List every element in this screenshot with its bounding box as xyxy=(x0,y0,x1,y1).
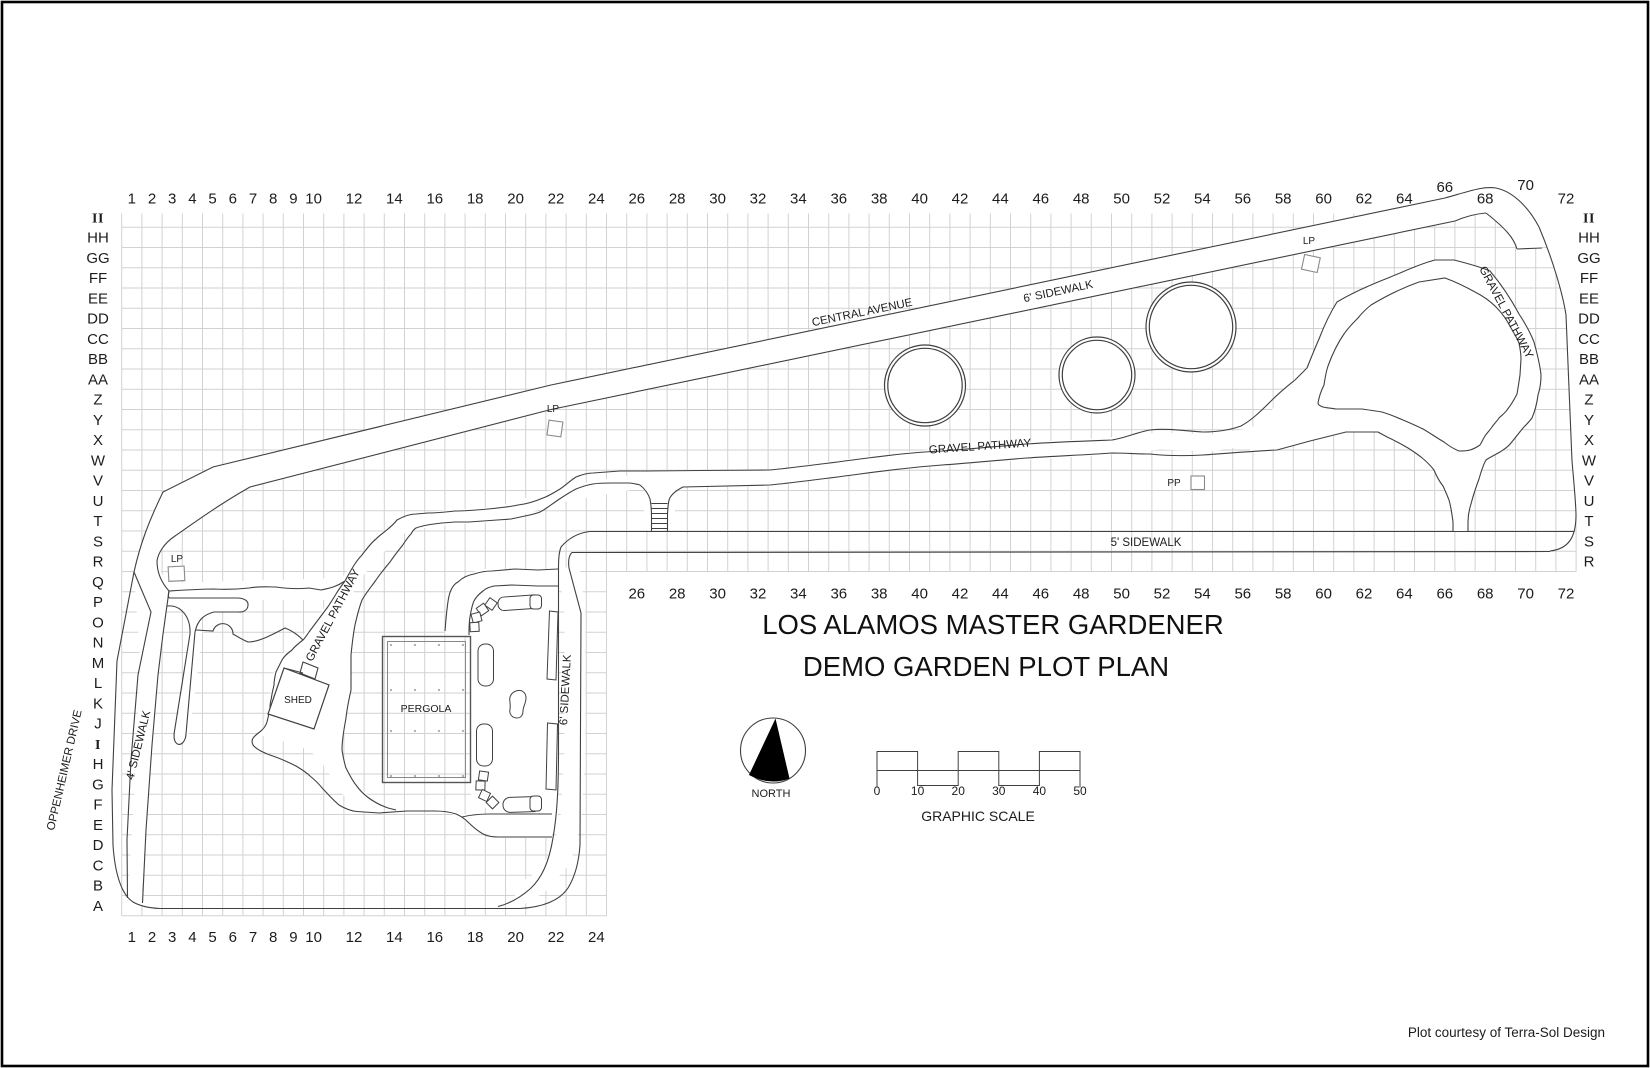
svg-text:12: 12 xyxy=(346,929,363,946)
svg-text:8: 8 xyxy=(269,191,277,208)
svg-text:X: X xyxy=(93,432,103,449)
svg-text:50: 50 xyxy=(1113,586,1130,603)
svg-text:LP: LP xyxy=(547,404,560,415)
svg-text:40: 40 xyxy=(911,191,928,208)
svg-text:18: 18 xyxy=(467,191,484,208)
svg-text:BB: BB xyxy=(1579,351,1599,368)
svg-text:52: 52 xyxy=(1154,191,1171,208)
svg-text:64: 64 xyxy=(1396,586,1413,603)
svg-text:DEMO GARDEN PLOT PLAN: DEMO GARDEN PLOT PLAN xyxy=(803,651,1169,682)
svg-text:36: 36 xyxy=(830,586,847,603)
svg-text:60: 60 xyxy=(1315,586,1332,603)
svg-text:60: 60 xyxy=(1315,191,1332,208)
svg-text:56: 56 xyxy=(1234,586,1251,603)
svg-text:38: 38 xyxy=(871,191,888,208)
svg-text:3: 3 xyxy=(168,929,176,946)
svg-text:Y: Y xyxy=(1584,412,1594,429)
svg-text:V: V xyxy=(93,473,103,490)
svg-text:PERGOLA: PERGOLA xyxy=(401,703,452,715)
svg-text:A: A xyxy=(93,898,103,915)
svg-text:20: 20 xyxy=(952,784,966,798)
svg-text:58: 58 xyxy=(1275,191,1292,208)
svg-text:42: 42 xyxy=(952,586,969,603)
svg-text:P: P xyxy=(93,594,103,611)
svg-text:34: 34 xyxy=(790,586,807,603)
svg-text:1: 1 xyxy=(128,191,136,208)
svg-text:26: 26 xyxy=(628,586,645,603)
svg-text:DD: DD xyxy=(87,311,109,328)
svg-text:32: 32 xyxy=(750,191,767,208)
svg-text:30: 30 xyxy=(709,191,726,208)
svg-text:8: 8 xyxy=(269,929,277,946)
svg-text:44: 44 xyxy=(992,586,1009,603)
svg-text:Q: Q xyxy=(92,574,104,591)
svg-text:T: T xyxy=(1584,513,1593,530)
svg-text:O: O xyxy=(92,614,104,631)
svg-text:22: 22 xyxy=(548,191,565,208)
svg-text:Y: Y xyxy=(93,412,103,429)
svg-text:AA: AA xyxy=(88,371,108,388)
svg-text:30: 30 xyxy=(992,784,1006,798)
svg-text:Plot courtesy of Terra-Sol Des: Plot courtesy of Terra-Sol Design xyxy=(1408,1025,1605,1040)
svg-text:GG: GG xyxy=(1577,250,1600,267)
svg-text:M: M xyxy=(92,655,105,672)
svg-text:64: 64 xyxy=(1396,191,1413,208)
svg-text:16: 16 xyxy=(426,191,443,208)
svg-text:34: 34 xyxy=(790,191,807,208)
svg-text:42: 42 xyxy=(952,191,969,208)
svg-text:70: 70 xyxy=(1517,586,1534,603)
svg-text:GRAPHIC SCALE: GRAPHIC SCALE xyxy=(921,808,1035,824)
svg-text:R: R xyxy=(93,554,104,571)
svg-text:U: U xyxy=(1584,493,1595,510)
svg-text:24: 24 xyxy=(588,929,605,946)
svg-text:W: W xyxy=(1582,452,1597,469)
svg-text:46: 46 xyxy=(1032,586,1049,603)
svg-text:EE: EE xyxy=(1579,290,1599,307)
svg-text:70: 70 xyxy=(1517,177,1534,194)
svg-text:L: L xyxy=(94,675,102,692)
svg-text:26: 26 xyxy=(628,191,645,208)
svg-text:7: 7 xyxy=(249,191,257,208)
svg-text:1: 1 xyxy=(128,929,136,946)
svg-text:2: 2 xyxy=(148,929,156,946)
svg-text:10: 10 xyxy=(305,929,322,946)
svg-text:72: 72 xyxy=(1558,586,1575,603)
svg-text:6: 6 xyxy=(229,191,237,208)
svg-text:I: I xyxy=(95,738,101,753)
svg-text:24: 24 xyxy=(588,191,605,208)
svg-text:7: 7 xyxy=(249,929,257,946)
svg-text:II: II xyxy=(1583,211,1595,226)
svg-text:3: 3 xyxy=(168,191,176,208)
svg-text:EE: EE xyxy=(88,290,108,307)
svg-text:5' SIDEWALK: 5' SIDEWALK xyxy=(1111,537,1182,549)
svg-text:10: 10 xyxy=(305,191,322,208)
svg-text:X: X xyxy=(1584,432,1594,449)
svg-text:HH: HH xyxy=(87,230,109,247)
svg-text:6: 6 xyxy=(229,929,237,946)
svg-text:16: 16 xyxy=(426,929,443,946)
svg-text:72: 72 xyxy=(1558,191,1575,208)
svg-text:PP: PP xyxy=(1167,478,1181,489)
svg-text:R: R xyxy=(1584,554,1595,571)
svg-text:46: 46 xyxy=(1032,191,1049,208)
svg-text:N: N xyxy=(93,635,104,652)
svg-text:H: H xyxy=(93,756,104,773)
svg-text:W: W xyxy=(91,452,106,469)
svg-text:68: 68 xyxy=(1477,586,1494,603)
svg-text:38: 38 xyxy=(871,586,888,603)
svg-text:Z: Z xyxy=(1584,392,1593,409)
svg-text:LOS ALAMOS MASTER GARDENER: LOS ALAMOS MASTER GARDENER xyxy=(762,609,1224,640)
svg-text:50: 50 xyxy=(1073,784,1087,798)
svg-text:Z: Z xyxy=(93,392,102,409)
svg-text:0: 0 xyxy=(874,784,881,798)
svg-text:U: U xyxy=(93,493,104,510)
svg-text:J: J xyxy=(94,716,102,733)
svg-text:CC: CC xyxy=(1578,331,1600,348)
svg-text:S: S xyxy=(93,533,103,550)
svg-text:62: 62 xyxy=(1356,191,1373,208)
svg-text:48: 48 xyxy=(1073,586,1090,603)
svg-text:14: 14 xyxy=(386,191,403,208)
svg-text:T: T xyxy=(93,513,102,530)
svg-text:58: 58 xyxy=(1275,586,1292,603)
svg-text:G: G xyxy=(92,776,104,793)
svg-text:NORTH: NORTH xyxy=(752,788,791,800)
svg-text:HH: HH xyxy=(1578,230,1600,247)
svg-text:66: 66 xyxy=(1436,586,1453,603)
svg-text:AA: AA xyxy=(1579,371,1599,388)
svg-text:GG: GG xyxy=(86,250,109,267)
svg-text:LP: LP xyxy=(1303,236,1316,247)
svg-text:20: 20 xyxy=(507,191,524,208)
svg-text:28: 28 xyxy=(669,191,686,208)
svg-text:4: 4 xyxy=(188,191,196,208)
svg-text:10: 10 xyxy=(911,784,925,798)
svg-text:SHED: SHED xyxy=(284,695,312,706)
svg-text:54: 54 xyxy=(1194,191,1211,208)
svg-text:4: 4 xyxy=(188,929,196,946)
svg-text:40: 40 xyxy=(911,586,928,603)
svg-text:II: II xyxy=(92,211,104,226)
svg-text:9: 9 xyxy=(289,929,297,946)
svg-text:62: 62 xyxy=(1356,586,1373,603)
svg-text:CC: CC xyxy=(87,331,109,348)
svg-text:40: 40 xyxy=(1033,784,1047,798)
svg-text:68: 68 xyxy=(1477,191,1494,208)
svg-text:5: 5 xyxy=(208,191,216,208)
svg-text:30: 30 xyxy=(709,586,726,603)
svg-text:48: 48 xyxy=(1073,191,1090,208)
svg-text:FF: FF xyxy=(1580,270,1598,287)
svg-text:20: 20 xyxy=(507,929,524,946)
svg-text:K: K xyxy=(93,695,103,712)
svg-text:2: 2 xyxy=(148,191,156,208)
svg-text:C: C xyxy=(93,857,104,874)
svg-text:B: B xyxy=(93,878,103,895)
svg-text:D: D xyxy=(93,837,104,854)
svg-text:BB: BB xyxy=(88,351,108,368)
svg-text:18: 18 xyxy=(467,929,484,946)
svg-text:44: 44 xyxy=(992,191,1009,208)
svg-text:9: 9 xyxy=(289,191,297,208)
svg-text:LP: LP xyxy=(171,554,184,565)
svg-text:14: 14 xyxy=(386,929,403,946)
svg-text:56: 56 xyxy=(1234,191,1251,208)
svg-text:S: S xyxy=(1584,533,1594,550)
svg-text:54: 54 xyxy=(1194,586,1211,603)
svg-text:32: 32 xyxy=(750,586,767,603)
svg-text:F: F xyxy=(93,797,102,814)
svg-text:DD: DD xyxy=(1578,311,1600,328)
svg-text:5: 5 xyxy=(208,929,216,946)
svg-text:28: 28 xyxy=(669,586,686,603)
svg-text:12: 12 xyxy=(346,191,363,208)
svg-text:50: 50 xyxy=(1113,191,1130,208)
svg-text:36: 36 xyxy=(830,191,847,208)
svg-text:E: E xyxy=(93,817,103,834)
svg-text:V: V xyxy=(1584,473,1594,490)
svg-text:52: 52 xyxy=(1154,586,1171,603)
svg-text:66: 66 xyxy=(1436,179,1453,196)
svg-text:22: 22 xyxy=(548,929,565,946)
svg-text:FF: FF xyxy=(89,270,107,287)
